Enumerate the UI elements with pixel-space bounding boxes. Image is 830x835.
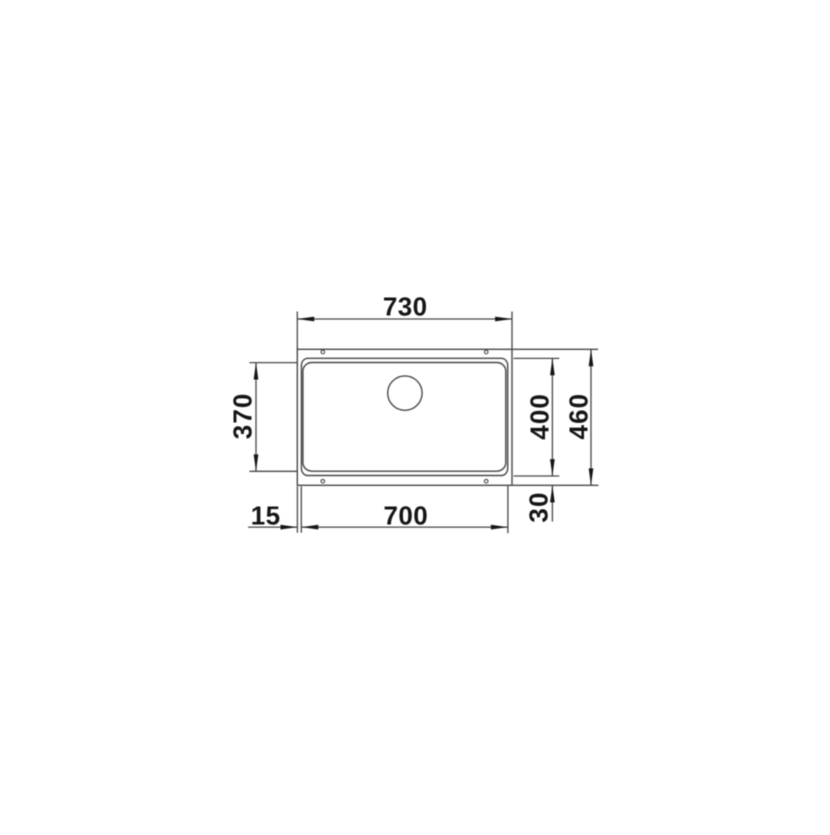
svg-text:30: 30 [523,491,553,522]
svg-text:370: 370 [228,393,258,440]
svg-text:460: 460 [564,393,594,440]
svg-text:700: 700 [384,501,429,531]
svg-text:400: 400 [524,393,554,440]
svg-text:15: 15 [251,501,281,531]
svg-text:730: 730 [383,291,428,321]
